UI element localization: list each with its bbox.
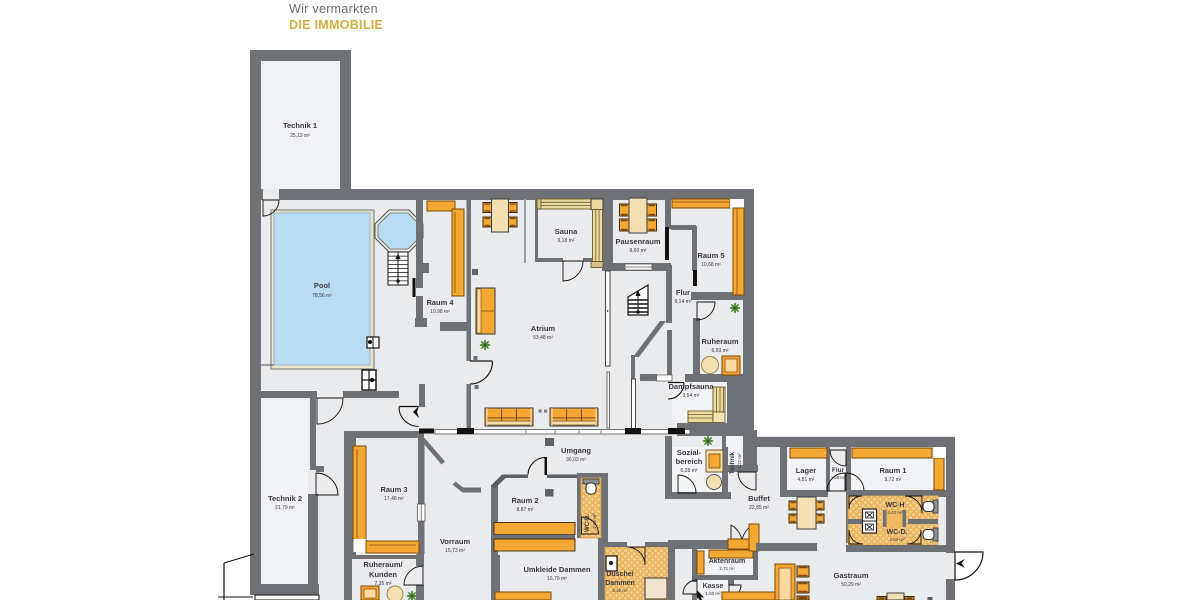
svg-text:Flur: Flur: [832, 467, 845, 474]
svg-text:Dammen: Dammen: [605, 580, 635, 587]
svg-text:Gastraum: Gastraum: [833, 571, 868, 580]
svg-text:WC-H: WC-H: [885, 502, 904, 509]
svg-text:1,50 m²: 1,50 m²: [705, 591, 721, 596]
svg-text:6,28 m²: 6,28 m²: [681, 468, 698, 474]
svg-text:bereich: bereich: [676, 457, 703, 466]
svg-text:Dusche/: Dusche/: [606, 571, 633, 578]
svg-text:78,56 m²: 78,56 m²: [312, 293, 332, 299]
svg-text:16,79 m²: 16,79 m²: [547, 576, 567, 582]
svg-text:7,35 m²: 7,35 m²: [375, 581, 392, 587]
svg-text:Buffet: Buffet: [748, 494, 770, 503]
svg-text:17,48 m²: 17,48 m²: [384, 496, 404, 502]
svg-text:4,00 m²: 4,00 m²: [889, 537, 905, 542]
svg-text:Sozial-: Sozial-: [677, 448, 702, 457]
svg-text:Technik 1: Technik 1: [283, 121, 317, 130]
svg-text:Vorraum: Vorraum: [440, 537, 471, 546]
svg-text:25,13 m²: 25,13 m²: [290, 133, 310, 139]
svg-text:53,48 m²: 53,48 m²: [533, 335, 553, 341]
svg-text:4,81 m²: 4,81 m²: [798, 477, 815, 483]
svg-text:WC-D.: WC-D.: [585, 514, 591, 532]
svg-text:2,71 m²: 2,71 m²: [719, 566, 735, 571]
svg-text:Kasse: Kasse: [703, 583, 724, 590]
svg-text:Raum 1: Raum 1: [879, 466, 906, 475]
svg-text:Raum 5: Raum 5: [697, 251, 724, 260]
svg-text:21,79 m²: 21,79 m²: [275, 505, 295, 511]
svg-text:6,93 m²: 6,93 m²: [712, 348, 729, 354]
svg-text:10,98 m²: 10,98 m²: [430, 309, 450, 315]
svg-text:Umgang: Umgang: [561, 446, 591, 455]
svg-text:22,85 m²: 22,85 m²: [749, 505, 769, 511]
svg-text:Dampfsauna: Dampfsauna: [668, 382, 714, 391]
svg-text:Technik: Technik: [730, 451, 736, 474]
svg-text:Technik 2: Technik 2: [268, 494, 302, 503]
svg-text:9,14 m²: 9,14 m²: [675, 299, 692, 305]
svg-text:DIE IMMOBILIE: DIE IMMOBILIE: [289, 18, 383, 32]
svg-text:Umkleide Dammen: Umkleide Dammen: [523, 565, 591, 574]
svg-text:9,18 m²: 9,18 m²: [558, 238, 575, 244]
svg-text:Flur: Flur: [676, 288, 690, 297]
svg-text:50,29 m²: 50,29 m²: [841, 582, 861, 588]
svg-text:WC-D.: WC-D.: [887, 529, 908, 536]
svg-text:Ruheraum/: Ruheraum/: [363, 560, 403, 569]
svg-text:15,73 m²: 15,73 m²: [445, 548, 465, 554]
svg-text:36,03 m²: 36,03 m²: [566, 457, 586, 463]
svg-text:3,54 m²: 3,54 m²: [683, 393, 700, 399]
svg-text:Pausenraum: Pausenraum: [615, 237, 660, 246]
svg-text:Raum 3: Raum 3: [380, 485, 407, 494]
svg-text:1,56 m²: 1,56 m²: [831, 475, 846, 480]
svg-text:9,72 m²: 9,72 m²: [885, 477, 902, 483]
svg-text:1,22 m²: 1,22 m²: [737, 453, 742, 469]
svg-text:10,68 m²: 10,68 m²: [701, 262, 721, 268]
svg-text:Pool: Pool: [314, 281, 330, 290]
svg-text:2,35 m²: 2,35 m²: [612, 588, 628, 593]
svg-text:Ruheraum: Ruheraum: [701, 337, 738, 346]
svg-text:4,42 m²: 4,42 m²: [887, 510, 903, 515]
svg-text:8,60 m²: 8,60 m²: [630, 248, 647, 254]
svg-text:Lager: Lager: [796, 466, 817, 475]
svg-text:Raum 2: Raum 2: [511, 496, 538, 505]
svg-text:Raum 4: Raum 4: [426, 298, 454, 307]
svg-text:Atrium: Atrium: [531, 324, 555, 333]
svg-text:Sauna: Sauna: [555, 227, 578, 236]
svg-text:2,55 m²: 2,55 m²: [592, 513, 597, 529]
svg-text:Kunden: Kunden: [369, 570, 397, 579]
svg-text:Aktenraum: Aktenraum: [709, 558, 746, 565]
svg-text:8,87 m²: 8,87 m²: [517, 507, 534, 513]
svg-text:Wir vermarkten: Wir vermarkten: [289, 2, 378, 16]
